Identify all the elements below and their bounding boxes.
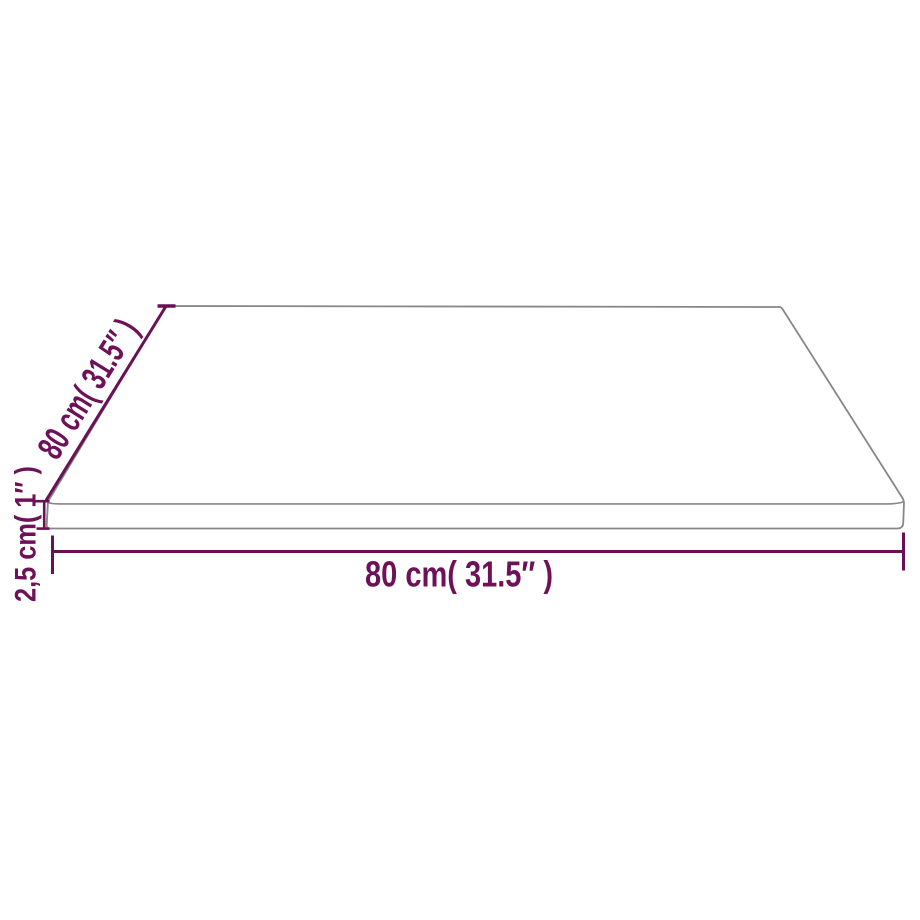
svg-text:2,5 cm( 1″ ): 2,5 cm( 1″ ): [10, 466, 43, 602]
svg-text:80 cm( 31.5″ ): 80 cm( 31.5″ ): [365, 554, 553, 595]
